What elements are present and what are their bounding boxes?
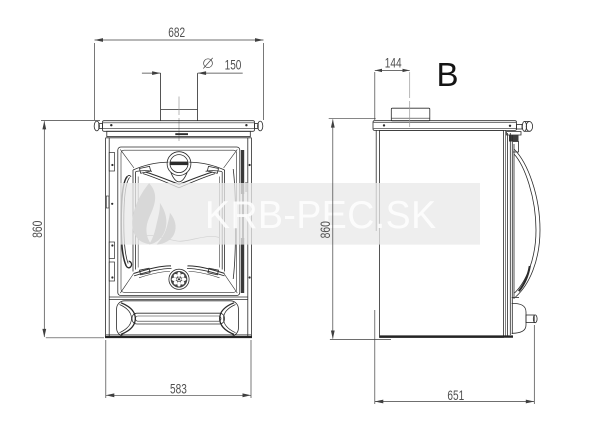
svg-text:682: 682	[168, 24, 185, 40]
svg-text:150: 150	[225, 57, 242, 73]
svg-text:583: 583	[170, 381, 187, 397]
svg-text:B: B	[437, 56, 459, 93]
svg-text:860: 860	[317, 221, 333, 238]
svg-text:651: 651	[447, 387, 464, 403]
svg-text:144: 144	[385, 55, 402, 71]
svg-text:860: 860	[29, 221, 45, 238]
